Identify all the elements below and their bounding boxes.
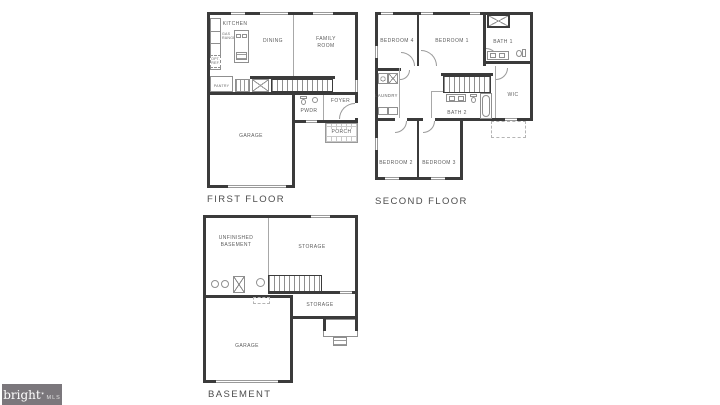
areaway-post [355, 319, 358, 331]
window [340, 291, 352, 294]
first-floor-plan: PANTRY GAS RANGE OPT. REF. PORCH KITCHEN… [205, 10, 367, 215]
front-door-swing [339, 103, 355, 119]
storage-lower-label: STORAGE [296, 302, 344, 309]
basement-plan: UNFINISHED BASEMENT STORAGE STORAGE GARA… [200, 213, 372, 405]
wall [417, 15, 419, 66]
bedroom1-label: BEDROOM 1 [423, 38, 481, 45]
laundry-door-swing [400, 70, 410, 80]
storage-upper-label: STORAGE [288, 244, 336, 251]
cabinet [378, 107, 388, 115]
bedroom1-door-swing [421, 50, 437, 66]
star-icon: ✶ [41, 392, 45, 397]
wall [203, 295, 293, 298]
island-sink [242, 34, 247, 38]
bath1-label: BATH 1 [487, 39, 519, 46]
stairs [443, 76, 491, 93]
optional-area-outline [491, 121, 526, 138]
bedroom4-door-swing [401, 52, 415, 66]
sink [312, 97, 318, 103]
laundry-label: LAUNDRY [374, 93, 399, 98]
interior-wall [431, 91, 432, 118]
bedroom4-label: BEDROOM 4 [377, 38, 417, 45]
stairs [271, 79, 333, 92]
exterior-steps [333, 337, 347, 346]
wall [460, 121, 463, 180]
basement-title: BASEMENT [208, 389, 271, 400]
porch-label: PORCH [327, 129, 356, 136]
closet-double-door [252, 79, 269, 92]
window [381, 12, 393, 15]
garage-door [216, 380, 278, 383]
bedroom2-door-swing [395, 121, 407, 133]
bright-mls-watermark: bright✶MLS [2, 384, 62, 405]
window [355, 80, 358, 92]
window [421, 12, 433, 15]
garage-label: GARAGE [225, 133, 277, 140]
window [231, 12, 245, 15]
window [385, 177, 399, 180]
stairs [268, 275, 322, 292]
second-floor-plan: BEDROOM 4 BEDROOM 1 BATH 1 LAUNDRY WIC B… [373, 10, 541, 210]
closet-bifold [235, 79, 250, 92]
toilet-bowl [471, 97, 476, 103]
vanity-sink [499, 53, 505, 58]
window [470, 12, 480, 15]
wic-label: WIC [495, 92, 531, 99]
wall [375, 68, 401, 71]
areaway-post [323, 319, 326, 331]
bath2-label: BATH 2 [439, 110, 475, 117]
bright-mls-logo-text: bright [3, 389, 41, 401]
first-floor-title: FIRST FLOOR [207, 194, 285, 205]
unfinished-basement-label: UNFINISHED BASEMENT [210, 235, 262, 248]
pwdr-label: PWDR [295, 108, 323, 115]
window [375, 138, 378, 150]
interior-wall [268, 218, 269, 275]
wall [203, 215, 358, 218]
floor-plan-sheet: PANTRY GAS RANGE OPT. REF. PORCH KITCHEN… [0, 0, 720, 405]
dishwasher [236, 52, 247, 60]
shower [487, 14, 510, 28]
bedroom2-label: BEDROOM 2 [375, 160, 417, 167]
furnace [233, 276, 245, 293]
vanity-sink [458, 96, 464, 101]
toilet-bowl [301, 99, 306, 105]
family-room-label: FAMILY ROOM [313, 36, 339, 49]
pantry-label: PANTRY [210, 84, 233, 88]
bedroom3-door-swing [423, 121, 435, 133]
water-heater [221, 280, 229, 288]
cabinet [388, 107, 398, 115]
wall [417, 121, 419, 180]
interior-wall [293, 15, 294, 76]
wic-door-swing [496, 68, 508, 80]
bright-mls-logo-suffix: MLS [46, 395, 60, 401]
wall [207, 92, 358, 95]
toilet-tank [522, 49, 526, 57]
garage-door [228, 185, 286, 188]
window [260, 12, 288, 15]
wall [290, 298, 293, 383]
opt-ref-label: OPT. REF. [209, 57, 222, 66]
foyer-label: FOYER [323, 98, 358, 105]
toilet-bowl [516, 50, 522, 57]
dryer [388, 73, 398, 84]
wall [355, 215, 358, 319]
sump-pump [211, 280, 219, 288]
window [313, 12, 333, 15]
vanity-sink [449, 96, 455, 101]
washer [378, 73, 388, 84]
areaway [323, 319, 358, 337]
window [375, 46, 378, 58]
island-sink [236, 34, 241, 38]
window [306, 120, 317, 123]
window [311, 215, 330, 218]
tank [256, 278, 265, 287]
kitchen-label: KITCHEN [215, 21, 255, 28]
garage-label: GARAGE [222, 343, 272, 350]
wall [203, 215, 206, 383]
wall [486, 61, 533, 64]
bathtub-basin [482, 95, 490, 117]
optional-door-outline [253, 297, 270, 304]
window [431, 177, 445, 180]
second-floor-title: SECOND FLOOR [375, 196, 468, 207]
front-door-opening [355, 103, 358, 118]
wall [530, 12, 533, 121]
range [210, 31, 221, 44]
bedroom3-label: BEDROOM 3 [418, 160, 460, 167]
vanity-sink [490, 53, 496, 58]
dining-label: DINING [253, 38, 293, 45]
